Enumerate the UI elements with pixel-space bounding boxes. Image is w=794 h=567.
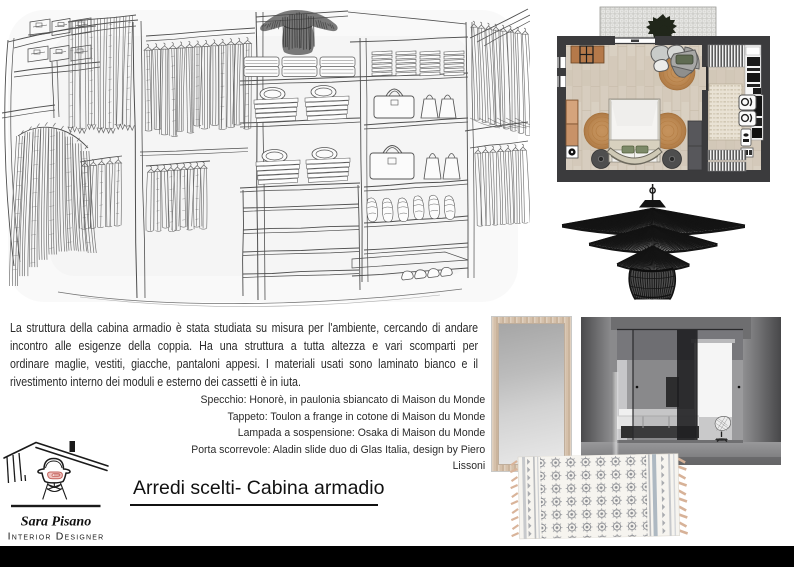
svg-text:Interior Designer: Interior Designer — [8, 531, 105, 543]
svg-text:Sara Pisano: Sara Pisano — [21, 515, 91, 530]
